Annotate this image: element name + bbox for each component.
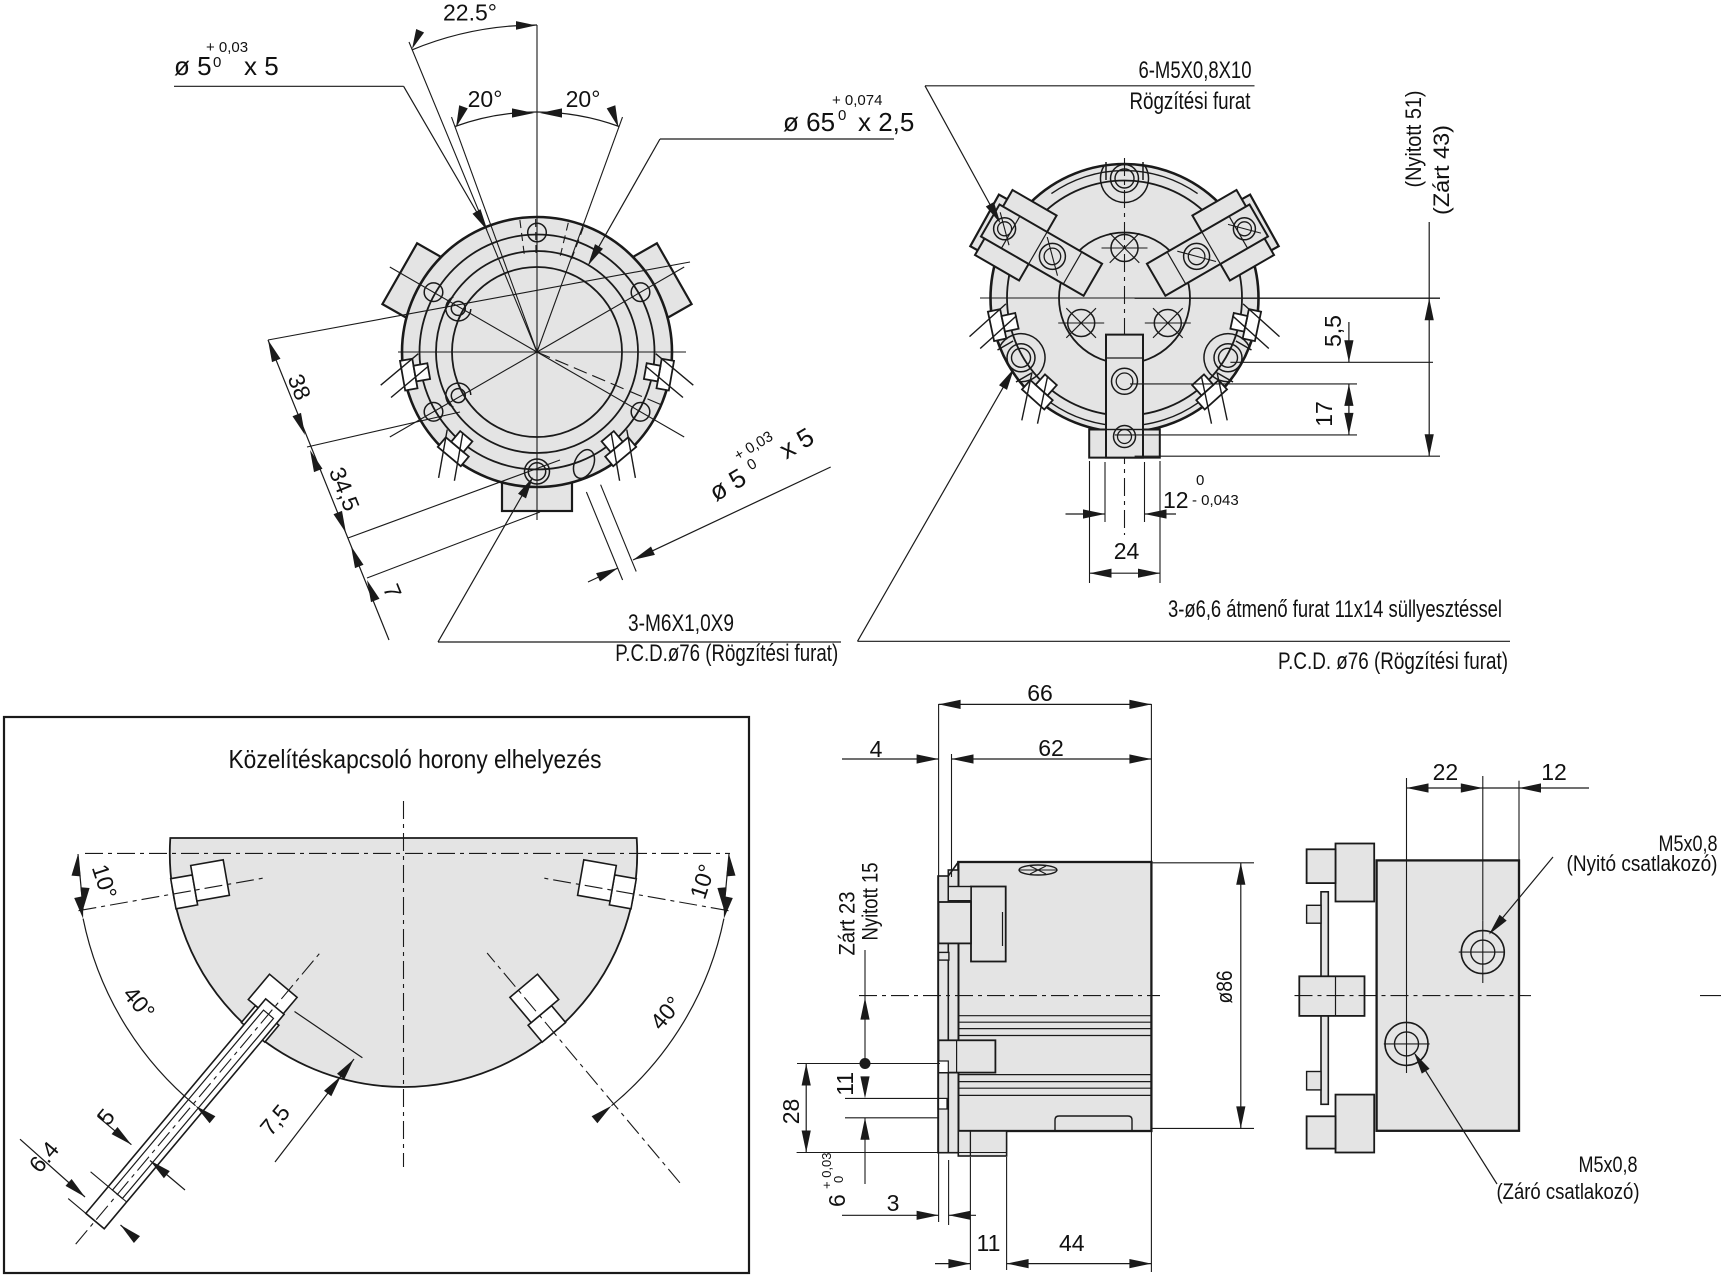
svg-text:(Nyitó csatlakozó): (Nyitó csatlakozó) bbox=[1567, 851, 1718, 876]
svg-text:24: 24 bbox=[1114, 538, 1140, 564]
svg-text:22.5°: 22.5° bbox=[443, 0, 497, 26]
svg-text:10°: 10° bbox=[685, 861, 720, 902]
svg-text:7,5: 7,5 bbox=[255, 1099, 295, 1140]
svg-text:4: 4 bbox=[870, 736, 883, 762]
svg-text:ø 65: ø 65 bbox=[783, 107, 835, 137]
svg-text:P.C.D. ø76 (Rögzítési furat): P.C.D. ø76 (Rögzítési furat) bbox=[1278, 648, 1508, 675]
svg-text:3-ø6,6 átmenő furat 11x14 sül: 3-ø6,6 átmenő furat 11x14 süllyesztéssel bbox=[1168, 596, 1502, 623]
svg-text:12: 12 bbox=[1163, 487, 1189, 513]
svg-text:34,5: 34,5 bbox=[324, 463, 365, 514]
svg-text:0: 0 bbox=[831, 1176, 846, 1183]
svg-text:6.4: 6.4 bbox=[24, 1136, 65, 1177]
svg-text:11: 11 bbox=[832, 1072, 858, 1096]
svg-text:Nyitott 15: Nyitott 15 bbox=[858, 863, 883, 941]
svg-text:Zárt 23: Zárt 23 bbox=[835, 892, 860, 956]
svg-text:0: 0 bbox=[838, 107, 846, 124]
svg-text:x 2,5: x 2,5 bbox=[858, 107, 914, 137]
svg-text:Rögzítési furat: Rögzítési furat bbox=[1130, 88, 1251, 115]
svg-text:ø86: ø86 bbox=[1212, 971, 1237, 1004]
svg-text:66: 66 bbox=[1027, 680, 1053, 706]
svg-text:(Zárt 43): (Zárt 43) bbox=[1429, 125, 1454, 215]
svg-text:17: 17 bbox=[1311, 401, 1337, 427]
svg-text:0: 0 bbox=[744, 455, 760, 474]
svg-text:(Záró csatlakozó): (Záró csatlakozó) bbox=[1497, 1179, 1640, 1204]
svg-text:ø 5: ø 5 bbox=[704, 462, 752, 507]
svg-text:40°: 40° bbox=[118, 981, 160, 1024]
svg-text:x 5: x 5 bbox=[774, 421, 819, 465]
svg-text:40°: 40° bbox=[645, 991, 687, 1034]
svg-text:20°: 20° bbox=[468, 86, 503, 112]
svg-text:28: 28 bbox=[778, 1099, 804, 1125]
svg-text:x 5: x 5 bbox=[244, 51, 279, 81]
svg-text:6: 6 bbox=[824, 1194, 850, 1207]
svg-text:20°: 20° bbox=[566, 86, 601, 112]
svg-text:0: 0 bbox=[213, 54, 221, 71]
svg-text:Közelítéskapcsoló horony elhel: Közelítéskapcsoló horony elhelyezés bbox=[229, 744, 602, 774]
svg-text:5: 5 bbox=[92, 1104, 120, 1131]
svg-text:44: 44 bbox=[1059, 1230, 1085, 1256]
svg-text:P.C.D.ø76 (Rögzítési furat): P.C.D.ø76 (Rögzítési furat) bbox=[615, 640, 838, 667]
svg-text:12: 12 bbox=[1541, 759, 1567, 785]
svg-text:11: 11 bbox=[977, 1230, 1001, 1256]
svg-text:M5x0,8: M5x0,8 bbox=[1579, 1152, 1638, 1177]
svg-text:62: 62 bbox=[1038, 735, 1064, 761]
svg-text:(Nyitott 51): (Nyitott 51) bbox=[1401, 91, 1426, 188]
svg-text:5,5: 5,5 bbox=[1320, 315, 1346, 347]
svg-text:+ 0,03: + 0,03 bbox=[731, 428, 776, 464]
svg-text:22: 22 bbox=[1433, 759, 1459, 785]
svg-text:3-M6X1,0X9: 3-M6X1,0X9 bbox=[628, 610, 734, 637]
svg-text:6-M5X0,8X10: 6-M5X0,8X10 bbox=[1139, 57, 1252, 84]
svg-text:3: 3 bbox=[887, 1190, 900, 1216]
svg-text:0: 0 bbox=[1196, 472, 1204, 489]
svg-text:10°: 10° bbox=[87, 861, 122, 902]
svg-text:38: 38 bbox=[283, 370, 317, 403]
svg-text:- 0,043: - 0,043 bbox=[1192, 492, 1239, 509]
svg-text:7: 7 bbox=[378, 580, 407, 602]
